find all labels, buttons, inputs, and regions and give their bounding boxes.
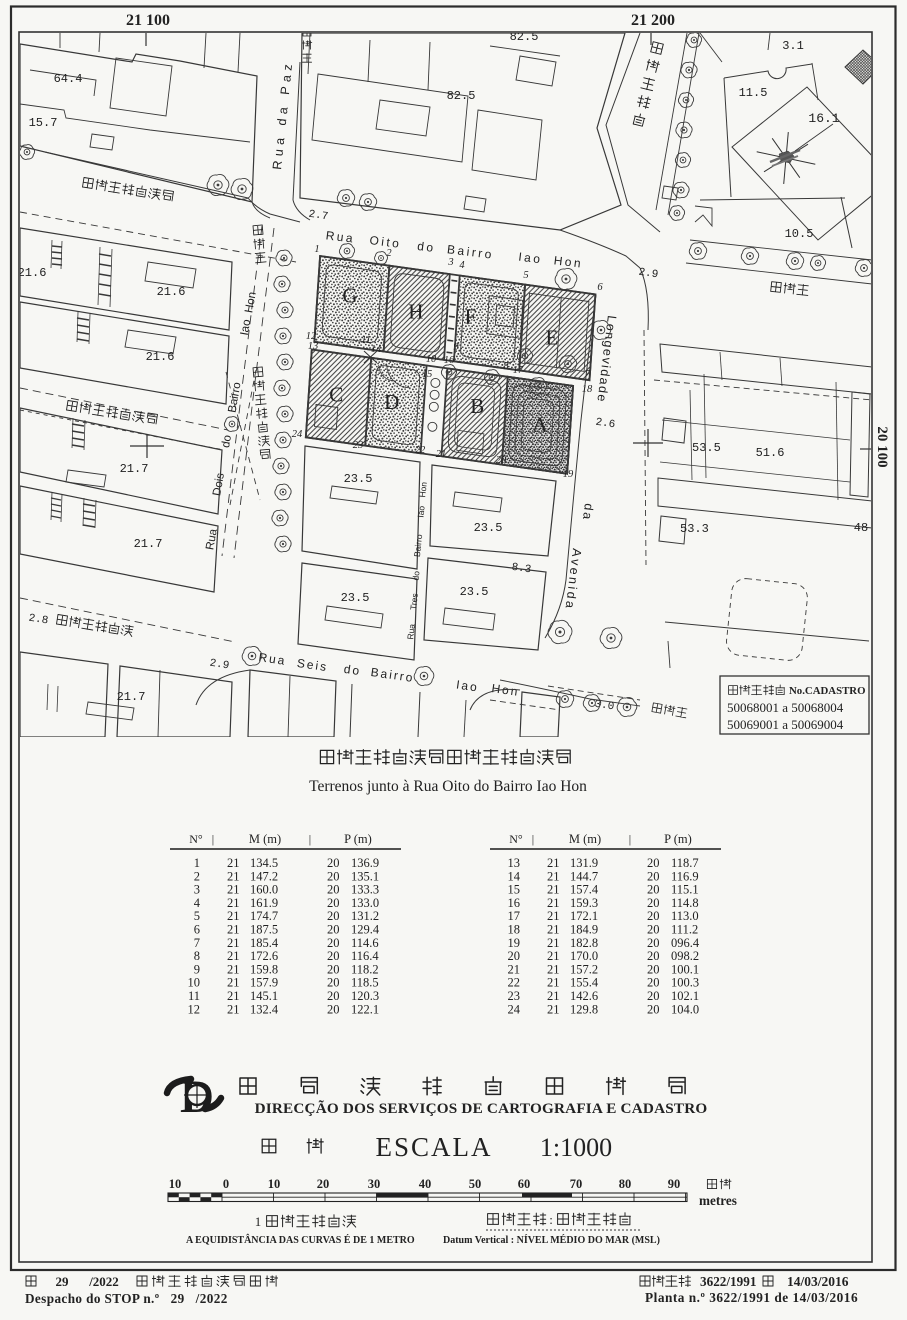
- svg-text:2: 2: [194, 869, 200, 883]
- svg-text:113.0: 113.0: [671, 909, 699, 923]
- svg-text:24: 24: [292, 429, 303, 440]
- svg-text:A EQUIDISTÂNCIA DAS CURVAS É D: A EQUIDISTÂNCIA DAS CURVAS É DE 1 METRO: [186, 1234, 415, 1246]
- svg-text:3: 3: [447, 257, 453, 268]
- svg-text:DIRECÇÃO DOS SERVIÇOS DE CARTO: DIRECÇÃO DOS SERVIÇOS DE CARTOGRAFIA E C…: [255, 1099, 708, 1117]
- svg-text:14: 14: [508, 869, 521, 883]
- svg-text:11: 11: [361, 335, 371, 346]
- svg-text:115.1: 115.1: [671, 883, 699, 897]
- svg-text:10.5: 10.5: [785, 227, 814, 241]
- svg-text:20: 20: [647, 869, 660, 883]
- svg-text:118.5: 118.5: [351, 976, 379, 990]
- svg-text:4: 4: [194, 896, 201, 910]
- svg-text:B: B: [470, 394, 484, 418]
- svg-text:20: 20: [327, 1002, 340, 1016]
- svg-text:19: 19: [508, 936, 521, 950]
- svg-text:N°: N°: [189, 832, 203, 846]
- svg-text:21: 21: [227, 976, 240, 990]
- svg-text:157.4: 157.4: [570, 883, 599, 897]
- svg-text:7: 7: [194, 936, 200, 950]
- svg-text:3: 3: [194, 883, 200, 897]
- svg-text:21: 21: [547, 976, 560, 990]
- svg-text:48: 48: [854, 521, 868, 535]
- svg-text:21: 21: [227, 896, 240, 910]
- svg-text:Despacho do STOP n.º 29 /2: Despacho do STOP n.º 29 /2022: [25, 1291, 228, 1306]
- svg-text:Hon: Hon: [417, 481, 429, 498]
- svg-text:Terrenos junto à Rua Oito do B: Terrenos junto à Rua Oito do Bairro Iao …: [309, 778, 587, 795]
- svg-text:21: 21: [547, 856, 560, 870]
- svg-text:60: 60: [518, 1177, 531, 1191]
- svg-text:50068001 a 50068004: 50068001 a 50068004: [727, 700, 844, 715]
- svg-text:17: 17: [513, 365, 524, 376]
- svg-text:Datum Vertical : NÍVEL MÉDIO D: Datum Vertical : NÍVEL MÉDIO DO MAR (MSL…: [443, 1234, 660, 1246]
- svg-text:A: A: [532, 413, 548, 437]
- svg-text:21: 21: [547, 896, 560, 910]
- svg-text:160.0: 160.0: [250, 883, 278, 897]
- svg-text:C: C: [329, 382, 343, 406]
- svg-text:20: 20: [647, 989, 660, 1003]
- svg-text:155.4: 155.4: [570, 976, 599, 990]
- svg-text:80: 80: [619, 1177, 632, 1191]
- svg-text:134.5: 134.5: [250, 856, 278, 870]
- svg-text:Iao: Iao: [518, 250, 544, 267]
- svg-text:E: E: [545, 326, 558, 350]
- svg-text:20: 20: [327, 962, 340, 976]
- svg-text:20: 20: [647, 856, 660, 870]
- svg-text:20: 20: [327, 949, 340, 963]
- svg-text:do: do: [343, 662, 362, 678]
- svg-text:N°: N°: [509, 832, 523, 846]
- svg-text:20: 20: [647, 976, 660, 990]
- svg-text:1:1000: 1:1000: [540, 1133, 612, 1162]
- svg-text:|: |: [532, 832, 534, 846]
- svg-text:9: 9: [453, 342, 459, 353]
- svg-text:159.8: 159.8: [250, 962, 278, 976]
- svg-text:118.2: 118.2: [351, 962, 379, 976]
- svg-text:21: 21: [547, 936, 560, 950]
- svg-text:20: 20: [327, 923, 340, 937]
- svg-text:170.0: 170.0: [570, 949, 598, 963]
- svg-text:24: 24: [508, 1002, 521, 1016]
- svg-text:102.1: 102.1: [671, 989, 699, 1003]
- svg-text:21.6: 21.6: [18, 266, 47, 280]
- svg-text:131.9: 131.9: [570, 856, 598, 870]
- svg-text:157.9: 157.9: [250, 976, 278, 990]
- svg-text:21: 21: [227, 883, 240, 897]
- svg-text:20: 20: [327, 936, 340, 950]
- svg-text:Iao: Iao: [415, 505, 426, 518]
- svg-text:23.5: 23.5: [341, 591, 370, 605]
- svg-text:21: 21: [227, 962, 240, 976]
- svg-text:20 100: 20 100: [874, 426, 890, 467]
- svg-text:do: do: [411, 570, 422, 581]
- svg-text:/2022: /2022: [88, 1274, 119, 1289]
- svg-text::: :: [549, 1212, 553, 1227]
- svg-text:135.1: 135.1: [351, 869, 379, 883]
- svg-text:1: 1: [255, 1214, 262, 1229]
- svg-text:64.4: 64.4: [54, 72, 83, 86]
- svg-text:M (m): M (m): [569, 832, 601, 846]
- svg-text:142.6: 142.6: [570, 989, 598, 1003]
- svg-text:21: 21: [227, 923, 240, 937]
- svg-text:10: 10: [426, 354, 437, 365]
- svg-text:096.4: 096.4: [671, 936, 700, 950]
- svg-text:5: 5: [523, 270, 528, 281]
- svg-text:187.5: 187.5: [250, 923, 278, 937]
- svg-text:11: 11: [188, 989, 200, 1003]
- svg-text:|: |: [629, 832, 631, 846]
- svg-text:50: 50: [469, 1177, 482, 1191]
- svg-text:20: 20: [327, 883, 340, 897]
- svg-text:21: 21: [547, 949, 560, 963]
- svg-text:20: 20: [647, 896, 660, 910]
- svg-text:1: 1: [194, 856, 200, 870]
- svg-text:11.5: 11.5: [739, 86, 768, 100]
- svg-text:53.5: 53.5: [692, 441, 721, 455]
- svg-text:12: 12: [188, 1002, 201, 1016]
- svg-text:20: 20: [647, 883, 660, 897]
- svg-text:111.2: 111.2: [671, 923, 698, 937]
- svg-text:9: 9: [194, 962, 200, 976]
- svg-text:|: |: [212, 832, 214, 846]
- svg-text:20: 20: [317, 1177, 330, 1191]
- svg-text:182.8: 182.8: [570, 936, 598, 950]
- svg-text:20: 20: [647, 936, 660, 950]
- svg-text:15.7: 15.7: [29, 116, 58, 130]
- svg-text:G: G: [342, 284, 357, 308]
- svg-text:21: 21: [227, 936, 240, 950]
- svg-text:P (m): P (m): [344, 832, 372, 846]
- svg-text:21: 21: [227, 989, 240, 1003]
- svg-text:No.CADASTRO: No.CADASTRO: [789, 685, 866, 697]
- svg-text:do: do: [417, 239, 437, 255]
- svg-text:21: 21: [227, 869, 240, 883]
- svg-text:23: 23: [353, 440, 364, 451]
- svg-text:18: 18: [582, 384, 593, 395]
- svg-text:21: 21: [547, 1002, 560, 1016]
- svg-text:104.0: 104.0: [671, 1002, 699, 1016]
- svg-text:13: 13: [308, 341, 319, 352]
- svg-text:18: 18: [508, 923, 521, 937]
- svg-text:144.7: 144.7: [570, 869, 598, 883]
- svg-text:157.2: 157.2: [570, 962, 598, 976]
- svg-text:114.8: 114.8: [671, 896, 699, 910]
- svg-text:20: 20: [327, 896, 340, 910]
- svg-text:100.3: 100.3: [671, 976, 699, 990]
- svg-text:70: 70: [570, 1177, 583, 1191]
- svg-text:100.1: 100.1: [671, 962, 699, 976]
- svg-text:22: 22: [415, 445, 426, 456]
- svg-text:21: 21: [547, 962, 560, 976]
- svg-text:19: 19: [563, 469, 574, 480]
- svg-text:174.7: 174.7: [250, 909, 278, 923]
- svg-text:098.2: 098.2: [671, 949, 699, 963]
- svg-text:20: 20: [647, 962, 660, 976]
- svg-text:23.5: 23.5: [460, 585, 489, 599]
- svg-text:|: |: [309, 832, 311, 846]
- svg-text:136.9: 136.9: [351, 856, 379, 870]
- svg-text:21 100: 21 100: [126, 12, 170, 29]
- svg-text:161.9: 161.9: [250, 896, 278, 910]
- svg-text:21: 21: [227, 856, 240, 870]
- svg-text:15: 15: [508, 883, 521, 897]
- svg-text:1: 1: [314, 244, 319, 255]
- svg-text:30: 30: [368, 1177, 381, 1191]
- svg-text:21: 21: [547, 883, 560, 897]
- svg-text:M (m): M (m): [249, 832, 281, 846]
- svg-text:118.7: 118.7: [671, 856, 699, 870]
- svg-text:23.5: 23.5: [344, 472, 373, 486]
- svg-text:8: 8: [503, 361, 509, 372]
- svg-text:21.6: 21.6: [157, 285, 186, 299]
- svg-text:do: do: [220, 434, 234, 449]
- svg-text:51.6: 51.6: [756, 446, 785, 460]
- svg-text:20: 20: [496, 455, 507, 466]
- svg-text:14/03/2016: 14/03/2016: [787, 1274, 849, 1289]
- svg-text:21: 21: [547, 869, 560, 883]
- svg-text:120.3: 120.3: [351, 989, 379, 1003]
- svg-text:8: 8: [194, 949, 200, 963]
- svg-text:3622/1991: 3622/1991: [700, 1274, 756, 1289]
- svg-text:0: 0: [223, 1177, 229, 1191]
- svg-text:159.3: 159.3: [570, 896, 598, 910]
- svg-text:147.2: 147.2: [250, 869, 278, 883]
- svg-text:H: H: [408, 300, 423, 324]
- svg-text:40: 40: [419, 1177, 432, 1191]
- svg-text:21: 21: [227, 909, 240, 923]
- svg-text:21.7: 21.7: [134, 537, 163, 551]
- svg-text:Planta n.º 3622/1991 de 14/03/: Planta n.º 3622/1991 de 14/03/2016: [645, 1290, 858, 1305]
- svg-text:20: 20: [327, 976, 340, 990]
- svg-text:7: 7: [584, 369, 590, 380]
- svg-text:82.5: 82.5: [447, 89, 476, 103]
- svg-text:22: 22: [508, 976, 521, 990]
- svg-text:Tres: Tres: [408, 593, 420, 611]
- svg-text:21.7: 21.7: [120, 462, 149, 476]
- svg-text:15: 15: [422, 369, 433, 380]
- svg-text:21: 21: [227, 1002, 240, 1016]
- svg-text:23.5: 23.5: [474, 521, 503, 535]
- svg-text:13: 13: [508, 856, 521, 870]
- svg-text:116.9: 116.9: [671, 869, 699, 883]
- svg-text:132.4: 132.4: [250, 1002, 279, 1016]
- svg-text:20: 20: [327, 856, 340, 870]
- svg-text:133.0: 133.0: [351, 896, 379, 910]
- svg-text:21: 21: [547, 989, 560, 1003]
- svg-text:20: 20: [508, 949, 521, 963]
- svg-text:172.1: 172.1: [570, 909, 598, 923]
- svg-text:6: 6: [194, 923, 200, 937]
- svg-text:P (m): P (m): [664, 832, 692, 846]
- svg-text:16.1: 16.1: [808, 111, 839, 126]
- svg-text:21: 21: [436, 449, 447, 460]
- svg-text:23: 23: [508, 989, 521, 1003]
- svg-text:53.3: 53.3: [680, 522, 709, 536]
- svg-text:185.4: 185.4: [250, 936, 279, 950]
- svg-text:metres: metres: [699, 1193, 737, 1208]
- svg-text:21 200: 21 200: [631, 12, 675, 29]
- svg-text:21: 21: [227, 949, 240, 963]
- svg-text:ESCALA: ESCALA: [375, 1132, 492, 1162]
- svg-text:21: 21: [547, 909, 560, 923]
- svg-text:20: 20: [327, 989, 340, 1003]
- svg-text:20: 20: [647, 923, 660, 937]
- svg-text:172.6: 172.6: [250, 949, 278, 963]
- svg-text:21.6: 21.6: [146, 350, 175, 364]
- svg-text:20: 20: [647, 949, 660, 963]
- svg-text:Rua: Rua: [405, 623, 417, 640]
- svg-text:20: 20: [327, 909, 340, 923]
- svg-text:114.6: 114.6: [351, 936, 379, 950]
- svg-text:3.1: 3.1: [782, 39, 804, 53]
- svg-text:131.2: 131.2: [351, 909, 379, 923]
- svg-text:F: F: [465, 304, 477, 328]
- svg-text:116.4: 116.4: [351, 949, 379, 963]
- svg-text:17: 17: [508, 909, 521, 923]
- svg-text:20: 20: [647, 909, 660, 923]
- svg-text:21.7: 21.7: [117, 690, 146, 704]
- svg-text:6: 6: [597, 282, 603, 293]
- svg-text:10: 10: [268, 1177, 281, 1191]
- svg-text:12: 12: [306, 331, 317, 342]
- svg-text:145.1: 145.1: [250, 989, 278, 1003]
- svg-text:10: 10: [169, 1177, 182, 1191]
- svg-text:129.8: 129.8: [570, 1002, 598, 1016]
- svg-text:5: 5: [194, 909, 200, 923]
- svg-text:20: 20: [647, 1002, 660, 1016]
- svg-text:21: 21: [547, 923, 560, 937]
- svg-text:14: 14: [371, 344, 382, 355]
- svg-text:90: 90: [668, 1177, 681, 1191]
- svg-text:21: 21: [508, 962, 521, 976]
- svg-text:20: 20: [327, 869, 340, 883]
- svg-text:129.4: 129.4: [351, 923, 380, 937]
- svg-text:184.9: 184.9: [570, 923, 598, 937]
- svg-text:133.3: 133.3: [351, 883, 379, 897]
- svg-text:4: 4: [459, 260, 465, 271]
- svg-text:50069001 a 50069004: 50069001 a 50069004: [727, 717, 844, 732]
- svg-text:122.1: 122.1: [351, 1002, 379, 1016]
- svg-text:29: 29: [56, 1274, 70, 1289]
- svg-text:10: 10: [188, 976, 201, 990]
- svg-text:16: 16: [508, 896, 521, 910]
- svg-text:D: D: [384, 390, 399, 414]
- svg-text:da: da: [580, 503, 596, 522]
